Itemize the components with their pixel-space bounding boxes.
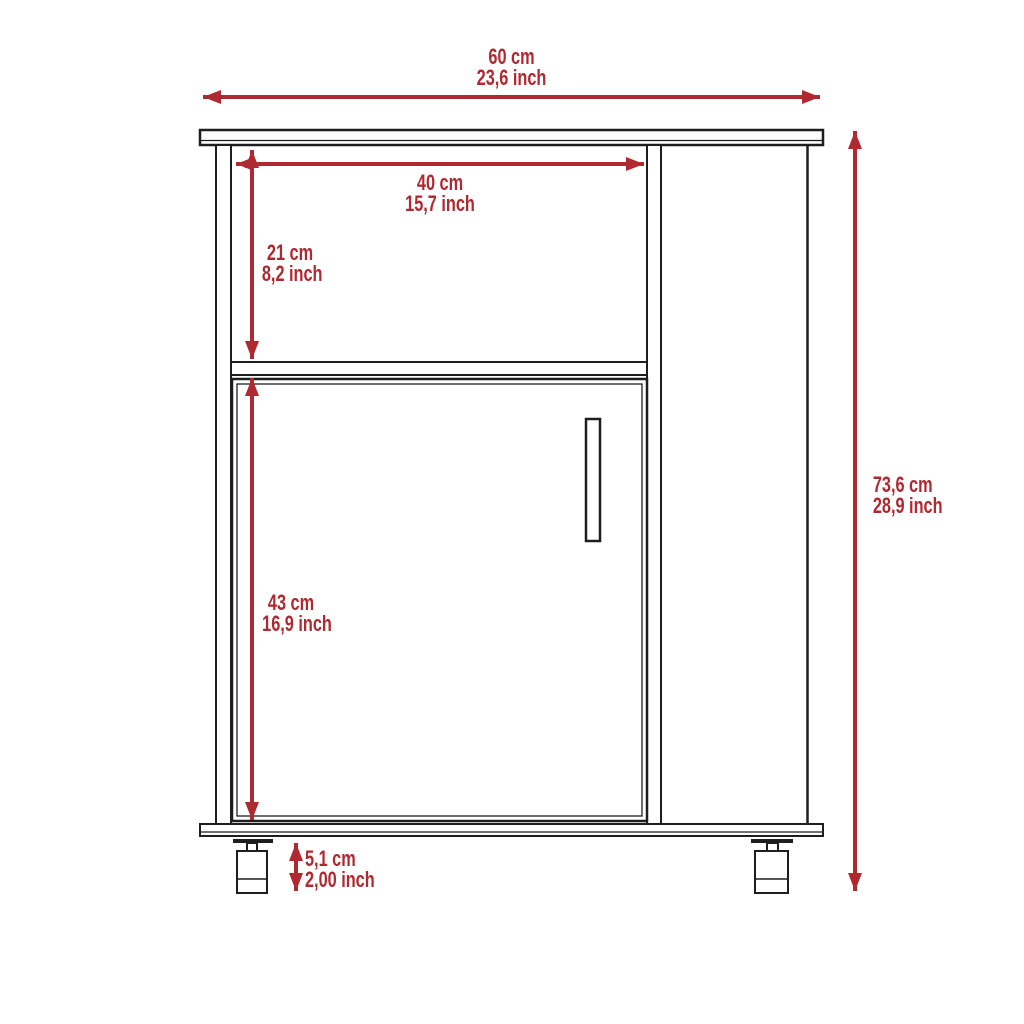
cabinet-divider-panel [647, 145, 661, 824]
compartment-width-label: 40 cm 15,7 inch [288, 172, 591, 214]
dimension-diagram: 60 cm 23,6 inch 40 cm 15,7 inch 21 cm 8,… [0, 0, 1024, 1024]
right-caster [751, 839, 793, 893]
compartment-width-inch: 15,7 inch [288, 193, 591, 214]
overall-height-inch: 28,9 inch [873, 495, 923, 516]
leg-height-inch: 2,00 inch [305, 869, 372, 890]
door-handle [586, 419, 600, 541]
overall-height-label: 73,6 cm 28,9 inch [873, 474, 923, 516]
cabinet-top-panel [200, 130, 823, 145]
leg-height-cm: 5,1 cm [305, 848, 372, 869]
compartment-height-inch: 8,2 inch [262, 263, 318, 284]
cabinet-bottom-panel [200, 824, 823, 836]
overall-width-label: 60 cm 23,6 inch [281, 46, 742, 88]
cabinet-shelf [231, 362, 647, 375]
cabinet-left-panel [216, 145, 231, 824]
compartment-height-label: 21 cm 8,2 inch [262, 242, 318, 284]
overall-width-cm: 60 cm [281, 46, 742, 67]
compartment-height-cm: 21 cm [262, 242, 318, 263]
door-height-label: 43 cm 16,9 inch [262, 592, 320, 634]
leg-height-label: 5,1 cm 2,00 inch [305, 848, 372, 890]
overall-width-inch: 23,6 inch [281, 67, 742, 88]
door-height-cm: 43 cm [262, 592, 320, 613]
left-caster [233, 839, 273, 893]
cabinet-line-drawing [0, 0, 1024, 1024]
overall-height-cm: 73,6 cm [873, 474, 923, 495]
door-height-inch: 16,9 inch [262, 613, 320, 634]
compartment-width-cm: 40 cm [288, 172, 591, 193]
